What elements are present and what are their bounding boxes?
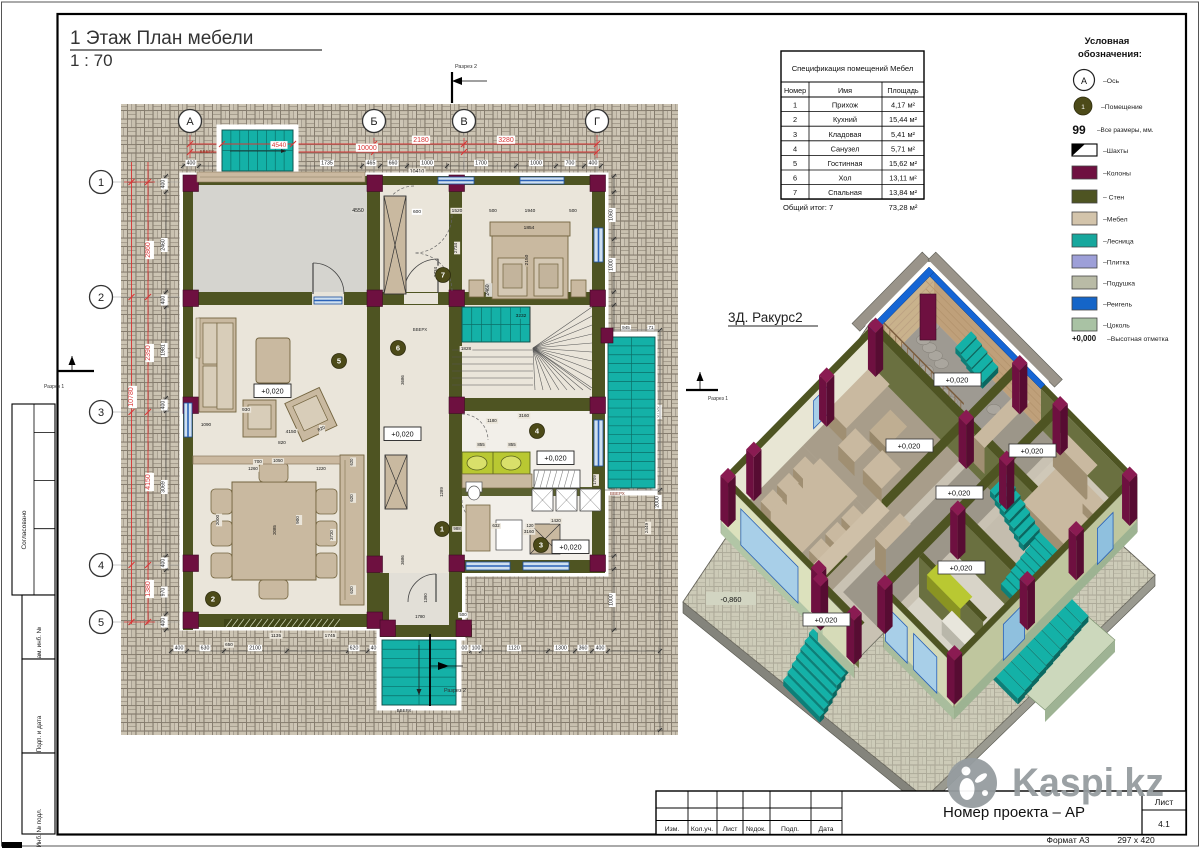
svg-text:1060: 1060 (608, 209, 614, 221)
svg-text:–Все размеры, мм.: –Все размеры, мм. (1097, 127, 1154, 134)
svg-text:930: 930 (242, 407, 250, 413)
svg-text:5,71 м²: 5,71 м² (891, 144, 916, 153)
svg-text:Дата: Дата (818, 826, 833, 833)
svg-text:620: 620 (349, 458, 354, 466)
svg-text:1854: 1854 (524, 225, 535, 231)
svg-text:Формат А3: Формат А3 (1047, 835, 1090, 845)
svg-text:3160: 3160 (519, 413, 530, 418)
svg-text:4: 4 (793, 144, 797, 153)
svg-text:3069: 3069 (160, 481, 166, 493)
svg-text:1: 1 (98, 177, 104, 189)
svg-text:400: 400 (175, 645, 184, 651)
svg-text:А: А (1081, 76, 1087, 86)
svg-text:3: 3 (539, 541, 543, 550)
svg-text:1000: 1000 (421, 160, 433, 166)
svg-text:–Колоны: –Колоны (1103, 171, 1131, 178)
svg-text:ВВЕРХ: ВВЕРХ (397, 708, 412, 713)
svg-text:6: 6 (793, 174, 797, 183)
svg-text:2: 2 (211, 595, 215, 604)
svg-text:1390: 1390 (423, 593, 428, 603)
svg-text:–Цоколь: –Цоколь (1103, 323, 1130, 330)
svg-text:+0,020: +0,020 (261, 387, 283, 396)
svg-text:4540: 4540 (272, 142, 287, 149)
svg-text:7: 7 (441, 271, 445, 280)
svg-text:4150: 4150 (286, 429, 297, 435)
svg-text:1300: 1300 (555, 645, 567, 651)
svg-text:3: 3 (793, 130, 797, 139)
svg-text:13,84 м²: 13,84 м² (889, 188, 918, 197)
svg-text:+0,020: +0,020 (559, 543, 581, 552)
svg-text:-0,860: -0,860 (721, 595, 742, 604)
svg-text:Согласовано: Согласовано (21, 510, 28, 549)
svg-text:А: А (186, 116, 194, 128)
svg-text:Прихож: Прихож (832, 101, 858, 110)
svg-text:970: 970 (160, 588, 166, 597)
svg-text:73,28 м²: 73,28 м² (889, 203, 918, 212)
svg-text:1000: 1000 (530, 160, 542, 166)
svg-text:1745: 1745 (325, 633, 336, 639)
svg-text:В: В (460, 116, 467, 128)
svg-text:Кухний: Кухний (833, 115, 857, 124)
svg-text:+0,020: +0,020 (948, 489, 971, 498)
svg-text:10780: 10780 (128, 387, 135, 407)
svg-text:Kaspi.kz: Kaspi.kz (1012, 761, 1164, 805)
svg-text:2449: 2449 (644, 522, 649, 533)
svg-text:700: 700 (566, 160, 575, 166)
svg-text:Б: Б (370, 116, 377, 128)
svg-text:–Ось: –Ось (1103, 78, 1119, 85)
svg-text:2: 2 (793, 115, 797, 124)
svg-text:Разрез 2: Разрез 2 (455, 64, 477, 70)
svg-text:297 х 420: 297 х 420 (1117, 835, 1155, 845)
svg-text:5: 5 (337, 357, 341, 366)
svg-text:988: 988 (453, 526, 461, 531)
svg-text:Площадь: Площадь (887, 86, 919, 95)
svg-text:71: 71 (648, 325, 654, 330)
svg-text:–Высотная отметка: –Высотная отметка (1107, 336, 1169, 343)
svg-text:1135: 1135 (271, 633, 282, 639)
svg-text:5: 5 (793, 159, 797, 168)
svg-text:400: 400 (596, 645, 605, 651)
svg-text:Спецификация помещений Мебел: Спецификация помещений Мебел (792, 64, 914, 73)
svg-text:Спальная: Спальная (828, 188, 862, 197)
svg-text:1220: 1220 (316, 466, 326, 471)
svg-text:400: 400 (160, 296, 166, 305)
svg-text:620: 620 (349, 494, 354, 502)
svg-text:500: 500 (459, 612, 467, 617)
svg-text:360: 360 (579, 645, 588, 651)
svg-text:500: 500 (569, 208, 577, 213)
svg-text:+0,020: +0,020 (1021, 447, 1044, 456)
svg-text:4150: 4150 (145, 474, 152, 490)
svg-text:Номер: Номер (784, 86, 806, 95)
svg-text:3720: 3720 (329, 530, 334, 540)
svg-text:–Мебел: –Мебел (1103, 216, 1128, 224)
svg-text:945: 945 (622, 325, 630, 330)
svg-text:400: 400 (160, 180, 166, 189)
svg-text:+0,020: +0,020 (391, 430, 413, 439)
svg-text:700: 700 (254, 459, 262, 464)
svg-text:ВВЕРХ: ВВЕРХ (610, 491, 625, 496)
svg-text:1: 1 (793, 101, 797, 110)
svg-text:630: 630 (201, 645, 210, 651)
svg-text:1180: 1180 (487, 418, 497, 423)
svg-text:Общий итог: 7: Общий итог: 7 (783, 203, 833, 212)
svg-text:900: 900 (295, 516, 300, 524)
svg-text:1380: 1380 (145, 581, 152, 597)
svg-text:ВВЕРХ: ВВЕРХ (413, 327, 428, 332)
svg-text:1050: 1050 (273, 458, 283, 463)
svg-text:Изм.: Изм. (665, 826, 680, 833)
svg-text:1780: 1780 (415, 614, 425, 619)
svg-text:500: 500 (489, 208, 497, 213)
svg-text:1520: 1520 (452, 208, 463, 214)
svg-text:+0,020: +0,020 (544, 454, 566, 463)
svg-text:465: 465 (367, 160, 376, 166)
svg-text:3Д. Ракурс2: 3Д. Ракурс2 (728, 310, 803, 325)
svg-text:620: 620 (349, 586, 354, 594)
svg-text:1735: 1735 (321, 160, 333, 166)
svg-text:+0,020: +0,020 (946, 376, 969, 385)
svg-text:№док.: №док. (746, 826, 766, 833)
svg-text:3686: 3686 (400, 555, 405, 565)
svg-text:13,11 м²: 13,11 м² (889, 174, 917, 183)
svg-text:6: 6 (396, 344, 400, 353)
svg-text:4,17 м²: 4,17 м² (891, 101, 916, 110)
svg-text:3686: 3686 (400, 375, 405, 385)
svg-text:7: 7 (793, 188, 797, 197)
svg-text:–Лесница: –Лесница (1103, 239, 1134, 246)
svg-text:Кол.уч.: Кол.уч. (691, 826, 713, 833)
svg-text:Имя: Имя (838, 86, 852, 95)
svg-text:2860: 2860 (145, 242, 152, 258)
svg-text:2460: 2460 (485, 284, 491, 295)
svg-text:Санузел: Санузел (831, 144, 860, 153)
svg-text:–Плитка: –Плитка (1103, 260, 1130, 267)
svg-text:1000: 1000 (608, 259, 614, 271)
svg-text:5,41 м²: 5,41 м² (891, 130, 916, 139)
svg-text:ВВЕРХ: ВВЕРХ (200, 149, 215, 154)
svg-text:15,62 м²: 15,62 м² (889, 159, 918, 168)
svg-text:1420: 1420 (551, 518, 561, 523)
svg-text:1940: 1940 (525, 208, 536, 214)
svg-text:99: 99 (1072, 123, 1086, 137)
svg-text:обозначения:: обозначения: (1078, 49, 1142, 60)
svg-text:3232: 3232 (516, 313, 527, 319)
svg-text:1 Этаж План мебели: 1 Этаж План мебели (70, 28, 253, 49)
svg-text:400: 400 (160, 618, 166, 627)
svg-text:2: 2 (98, 292, 104, 304)
svg-text:855: 855 (477, 442, 485, 447)
svg-text:1: 1 (440, 525, 444, 534)
svg-text:–Помещение: –Помещение (1101, 104, 1143, 111)
svg-text:1709: 1709 (592, 475, 597, 485)
svg-text:2100: 2100 (249, 645, 261, 651)
svg-text:5: 5 (98, 617, 104, 629)
svg-text:15,44 м²: 15,44 м² (889, 115, 918, 124)
svg-text:2000: 2000 (654, 496, 660, 508)
svg-text:Лист: Лист (723, 826, 738, 833)
svg-text:–Шахты: –Шахты (1103, 148, 1128, 155)
svg-text:2180: 2180 (413, 137, 429, 144)
svg-text:632: 632 (492, 523, 500, 528)
svg-text:4: 4 (98, 560, 104, 572)
svg-text:10000: 10000 (357, 145, 377, 152)
svg-text:+0,020: +0,020 (898, 442, 921, 451)
svg-text:1: 1 (1081, 104, 1085, 111)
svg-text:–Реигель: –Реигель (1103, 302, 1132, 309)
svg-text:120: 120 (527, 523, 535, 528)
svg-text:2390: 2390 (145, 345, 152, 361)
svg-text:Разрез 1: Разрез 1 (708, 396, 728, 402)
svg-text:3280: 3280 (498, 137, 514, 144)
svg-text:1981: 1981 (160, 344, 166, 356)
svg-text:Г: Г (594, 116, 600, 128)
svg-text:4.1: 4.1 (1158, 819, 1170, 829)
svg-text:Гостинная: Гостинная (827, 159, 862, 168)
svg-text:400: 400 (160, 401, 166, 410)
svg-text:+0,020: +0,020 (950, 564, 973, 573)
svg-text:2734: 2734 (453, 242, 458, 253)
svg-text:1000: 1000 (608, 594, 614, 606)
svg-text:+0,000: +0,000 (1072, 334, 1097, 343)
svg-text:1120: 1120 (508, 645, 519, 651)
svg-text:–Подушка: –Подушка (1103, 281, 1135, 288)
svg-text:600: 600 (413, 209, 421, 215)
svg-text:400: 400 (160, 559, 166, 568)
svg-text:820: 820 (278, 440, 286, 445)
svg-text:Разрез 2: Разрез 2 (444, 688, 466, 694)
svg-text:1289: 1289 (439, 487, 444, 497)
svg-text:Инб. № подл.: Инб. № подл. (36, 808, 43, 847)
svg-text:Кладовая: Кладовая (828, 130, 861, 139)
svg-text:855: 855 (508, 442, 516, 447)
svg-text:1 : 70: 1 : 70 (70, 51, 113, 70)
svg-text:2000: 2000 (215, 514, 220, 525)
svg-text:2150: 2150 (524, 254, 530, 265)
svg-text:4550: 4550 (352, 208, 364, 214)
svg-text:Разрез 1: Разрез 1 (44, 384, 64, 390)
svg-text:– Стен: – Стен (1103, 195, 1124, 202)
svg-text:1090: 1090 (201, 422, 212, 427)
svg-text:620: 620 (350, 645, 359, 651)
svg-text:Подп. и дата: Подп. и дата (36, 715, 43, 752)
svg-text:1828: 1828 (461, 346, 472, 351)
svg-text:Подп.: Подп. (781, 826, 799, 833)
svg-text:650: 650 (225, 642, 233, 647)
svg-text:400: 400 (589, 160, 598, 166)
svg-text:1700: 1700 (475, 160, 487, 166)
svg-text:Условная: Условная (1085, 36, 1130, 47)
svg-text:2085: 2085 (272, 525, 277, 535)
svg-text:400: 400 (187, 160, 196, 166)
svg-text:Хол: Хол (838, 174, 851, 183)
svg-text:1260: 1260 (248, 466, 258, 471)
svg-text:660: 660 (389, 160, 398, 166)
svg-text:2460: 2460 (160, 239, 166, 251)
svg-text:100: 100 (472, 645, 481, 651)
svg-text:+0,020: +0,020 (815, 616, 838, 625)
svg-text:3: 3 (98, 407, 104, 419)
svg-text:3160: 3160 (524, 529, 535, 534)
